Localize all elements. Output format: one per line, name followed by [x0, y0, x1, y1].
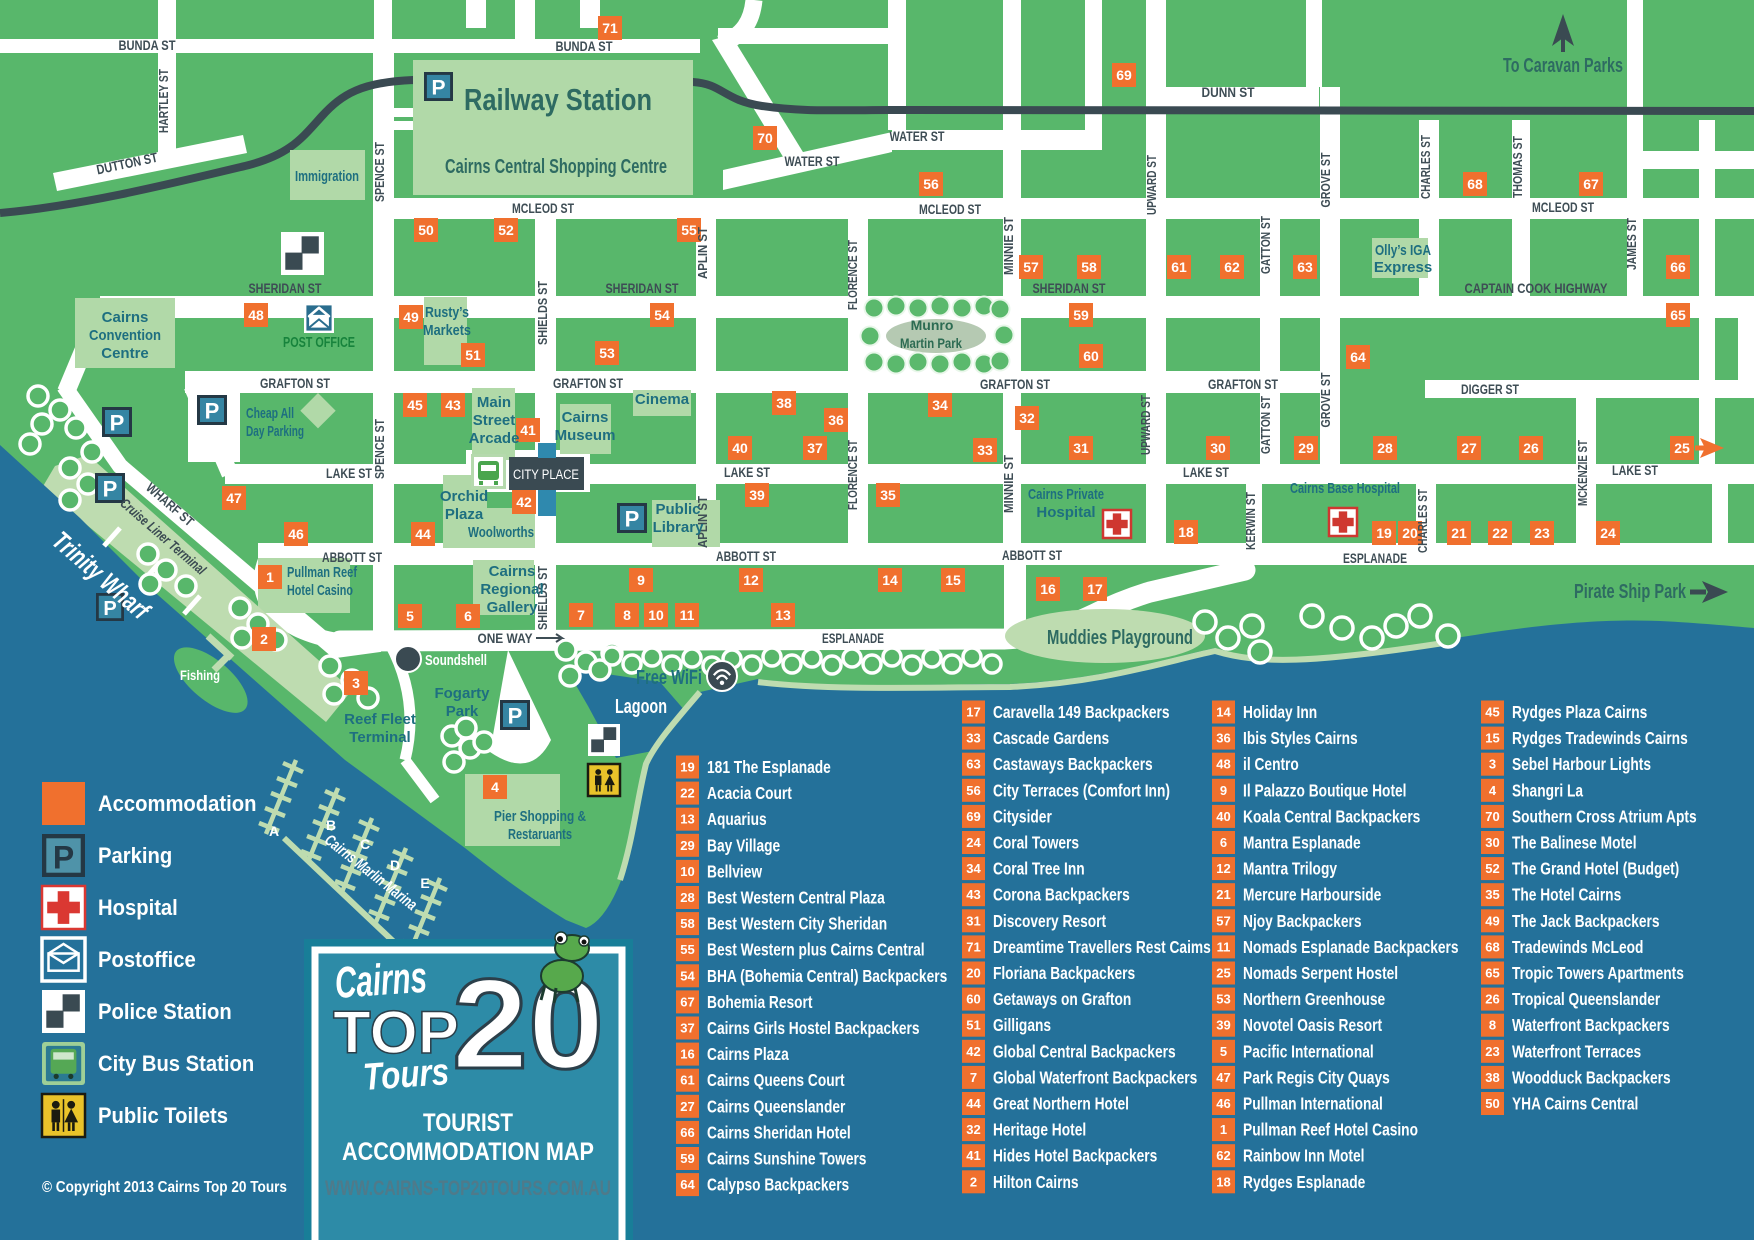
svg-text:Centre: Centre — [101, 345, 149, 362]
svg-text:Tradewinds McLeod: Tradewinds McLeod — [1512, 939, 1643, 958]
svg-text:10: 10 — [648, 607, 664, 623]
svg-text:The Balinese Motel: The Balinese Motel — [1512, 834, 1637, 853]
svg-text:HARTLEY ST: HARTLEY ST — [156, 69, 171, 133]
svg-text:53: 53 — [1216, 992, 1230, 1007]
svg-text:Pacific International: Pacific International — [1243, 1043, 1374, 1062]
svg-text:Cairns Girls Hostel Backpacker: Cairns Girls Hostel Backpackers — [707, 1020, 920, 1039]
svg-text:Aquarius: Aquarius — [707, 811, 767, 830]
svg-text:Best Western plus Cairns Centr: Best Western plus Cairns Central — [707, 941, 925, 960]
svg-text:58: 58 — [680, 916, 694, 931]
svg-text:40: 40 — [732, 440, 748, 456]
svg-text:Hospital: Hospital — [98, 896, 178, 920]
svg-text:CHARLES ST: CHARLES ST — [1415, 489, 1430, 553]
svg-text:P: P — [103, 476, 118, 501]
svg-text:24: 24 — [966, 835, 981, 850]
svg-text:26: 26 — [1485, 992, 1499, 1007]
svg-text:30: 30 — [1485, 835, 1499, 850]
svg-text:ABBOTT ST: ABBOTT ST — [322, 550, 383, 565]
svg-text:5: 5 — [406, 608, 414, 624]
svg-text:© Copyright 2013 Cairns Top 20: © Copyright 2013 Cairns Top 20 Tours — [42, 1179, 287, 1196]
svg-text:Restaruants: Restaruants — [508, 826, 572, 843]
svg-text:POST OFFICE: POST OFFICE — [283, 335, 355, 351]
svg-text:Fishing: Fishing — [180, 667, 220, 683]
svg-text:Waterfront Backpackers: Waterfront Backpackers — [1512, 1017, 1670, 1036]
svg-text:MINNIE ST: MINNIE ST — [1001, 455, 1016, 513]
svg-text:Postoffice: Postoffice — [98, 948, 196, 972]
svg-text:27: 27 — [680, 1099, 694, 1114]
svg-text:Hotel Casino: Hotel Casino — [287, 582, 353, 599]
svg-text:25: 25 — [1216, 966, 1230, 981]
svg-text:MCKENZIE ST: MCKENZIE ST — [1575, 440, 1590, 506]
svg-text:30: 30 — [1210, 440, 1226, 456]
svg-text:14: 14 — [882, 572, 898, 588]
svg-text:Immigration: Immigration — [295, 168, 359, 185]
svg-text:FLORENCE ST: FLORENCE ST — [845, 440, 860, 510]
svg-text:SHERIDAN ST: SHERIDAN ST — [249, 281, 323, 296]
svg-text:6: 6 — [1220, 835, 1227, 850]
svg-text:26: 26 — [1523, 440, 1539, 456]
svg-text:MCLEOD ST: MCLEOD ST — [512, 201, 575, 216]
svg-text:P: P — [53, 839, 74, 875]
svg-text:E: E — [420, 875, 429, 891]
svg-text:41: 41 — [520, 422, 536, 438]
svg-text:4: 4 — [491, 779, 499, 795]
svg-text:56: 56 — [923, 176, 939, 192]
svg-text:45: 45 — [407, 397, 423, 413]
svg-text:Njoy Backpackers: Njoy Backpackers — [1243, 912, 1362, 931]
svg-text:Hospital: Hospital — [1036, 504, 1095, 521]
svg-text:54: 54 — [680, 968, 695, 983]
svg-text:32: 32 — [1019, 410, 1035, 426]
svg-text:47: 47 — [226, 490, 242, 506]
svg-text:60: 60 — [966, 992, 980, 1007]
svg-text:Gilligans: Gilligans — [993, 1017, 1051, 1036]
svg-text:APLIN ST: APLIN ST — [695, 227, 710, 279]
svg-text:Koala Central Backpackers: Koala Central Backpackers — [1243, 808, 1421, 827]
svg-text:YHA Cairns Central: YHA Cairns Central — [1512, 1095, 1638, 1114]
svg-text:BUNDA ST: BUNDA ST — [556, 39, 614, 54]
svg-text:ACCOMMODATION MAP: ACCOMMODATION MAP — [342, 1138, 594, 1166]
svg-text:48: 48 — [248, 307, 264, 323]
svg-text:35: 35 — [880, 487, 896, 503]
svg-text:4: 4 — [1489, 783, 1497, 798]
svg-text:43: 43 — [445, 397, 461, 413]
svg-text:Caravella 149 Backpackers: Caravella 149 Backpackers — [993, 704, 1170, 723]
svg-text:Pullman International: Pullman International — [1243, 1095, 1383, 1114]
svg-text:15: 15 — [945, 572, 961, 588]
svg-text:Southern Cross Atrium Apts: Southern Cross Atrium Apts — [1512, 808, 1697, 827]
svg-text:Nomads Esplanade Backpackers: Nomads Esplanade Backpackers — [1243, 939, 1459, 958]
svg-text:ESPLANADE: ESPLANADE — [1343, 551, 1407, 566]
svg-text:20: 20 — [966, 966, 980, 981]
svg-text:Waterfront Terraces: Waterfront Terraces — [1512, 1043, 1641, 1062]
svg-text:21: 21 — [1216, 887, 1230, 902]
svg-text:65: 65 — [1670, 307, 1686, 323]
svg-text:P: P — [205, 398, 220, 423]
svg-text:GRAFTON ST: GRAFTON ST — [553, 376, 624, 391]
svg-text:54: 54 — [654, 307, 670, 323]
svg-text:SHERIDAN ST: SHERIDAN ST — [606, 281, 680, 296]
svg-text:17: 17 — [966, 705, 980, 720]
svg-text:WATER ST: WATER ST — [785, 154, 841, 169]
svg-text:Pirate Ship Park: Pirate Ship Park — [1574, 581, 1687, 603]
svg-text:46: 46 — [1216, 1096, 1230, 1111]
svg-text:Pier Shopping &: Pier Shopping & — [494, 808, 586, 825]
svg-text:67: 67 — [1583, 176, 1599, 192]
svg-text:48: 48 — [1216, 757, 1230, 772]
svg-text:Cascade Gardens: Cascade Gardens — [993, 730, 1109, 749]
svg-text:Coral Towers: Coral Towers — [993, 834, 1079, 853]
svg-text:Cairns: Cairns — [489, 563, 536, 580]
svg-text:Tours: Tours — [362, 1051, 451, 1099]
svg-text:1: 1 — [1220, 1122, 1227, 1137]
svg-text:41: 41 — [966, 1148, 980, 1163]
svg-text:Park Regis City Quays: Park Regis City Quays — [1243, 1069, 1390, 1088]
svg-text:Parking: Parking — [98, 844, 172, 868]
svg-text:DUNN ST: DUNN ST — [1202, 85, 1256, 100]
svg-text:ONE WAY: ONE WAY — [478, 631, 533, 646]
svg-text:31: 31 — [966, 913, 980, 928]
svg-text:C: C — [360, 836, 370, 852]
svg-text:68: 68 — [1467, 176, 1483, 192]
svg-text:Global Central Backpackers: Global Central Backpackers — [993, 1043, 1176, 1062]
svg-text:UPWARD ST: UPWARD ST — [1144, 155, 1159, 215]
svg-text:Fogarty: Fogarty — [434, 685, 490, 702]
svg-text:70: 70 — [1485, 809, 1499, 824]
svg-text:34: 34 — [966, 861, 981, 876]
svg-text:28: 28 — [680, 890, 694, 905]
svg-text:69: 69 — [1116, 67, 1132, 83]
svg-text:66: 66 — [680, 1125, 694, 1140]
svg-text:57: 57 — [1023, 259, 1039, 275]
svg-text:Heritage Hotel: Heritage Hotel — [993, 1121, 1086, 1140]
svg-text:Museum: Museum — [555, 427, 616, 444]
svg-text:62: 62 — [1216, 1148, 1230, 1163]
svg-text:47: 47 — [1216, 1070, 1230, 1085]
svg-text:LAKE ST: LAKE ST — [1612, 463, 1659, 478]
svg-text:SPENCE ST: SPENCE ST — [372, 419, 387, 479]
svg-text:52: 52 — [1485, 861, 1499, 876]
svg-text:10: 10 — [680, 864, 694, 879]
svg-text:Global Waterfront Backpackers: Global Waterfront Backpackers — [993, 1069, 1198, 1088]
svg-text:38: 38 — [776, 395, 792, 411]
svg-text:Discovery Resort: Discovery Resort — [993, 912, 1106, 931]
svg-text:ESPLANADE: ESPLANADE — [822, 631, 884, 646]
svg-text:Nomads Serpent Hostel: Nomads Serpent Hostel — [1243, 965, 1398, 984]
svg-text:59: 59 — [680, 1151, 694, 1166]
svg-text:Hides Hotel Backpackers: Hides Hotel Backpackers — [993, 1147, 1158, 1166]
svg-text:Rydges Esplanade: Rydges Esplanade — [1243, 1173, 1366, 1192]
svg-text:Muddies Playground: Muddies Playground — [1047, 627, 1193, 649]
svg-text:32: 32 — [966, 1122, 980, 1137]
svg-text:37: 37 — [680, 1021, 694, 1036]
svg-text:181 The Esplanade: 181 The Esplanade — [707, 759, 831, 778]
svg-text:Corona Backpackers: Corona Backpackers — [993, 886, 1130, 905]
svg-text:Reef Fleet: Reef Fleet — [344, 711, 416, 728]
svg-text:Cairns Private: Cairns Private — [1028, 486, 1104, 503]
svg-text:7: 7 — [970, 1070, 977, 1085]
svg-text:Accommodation: Accommodation — [98, 792, 256, 816]
svg-text:Cairns Base Hospital: Cairns Base Hospital — [1290, 480, 1400, 497]
svg-text:SHIELDS ST: SHIELDS ST — [535, 281, 550, 345]
svg-text:Woodduck Backpackers: Woodduck Backpackers — [1512, 1069, 1671, 1088]
svg-text:LAKE ST: LAKE ST — [326, 466, 373, 481]
svg-text:Cairns Queenslander: Cairns Queenslander — [707, 1098, 845, 1117]
svg-text:42: 42 — [966, 1044, 980, 1059]
svg-text:The Grand Hotel (Budget): The Grand Hotel (Budget) — [1512, 860, 1679, 879]
svg-text:69: 69 — [966, 809, 980, 824]
svg-text:P: P — [431, 77, 445, 100]
svg-text:14: 14 — [1216, 705, 1231, 720]
svg-text:51: 51 — [966, 1018, 980, 1033]
svg-text:22: 22 — [680, 786, 694, 801]
svg-text:64: 64 — [680, 1177, 695, 1192]
svg-text:Holiday Inn: Holiday Inn — [1243, 704, 1317, 723]
svg-text:Rainbow Inn Motel: Rainbow Inn Motel — [1243, 1147, 1364, 1166]
svg-text:Markets: Markets — [423, 322, 471, 339]
svg-text:43: 43 — [966, 887, 980, 902]
svg-text:Best Western Central Plaza: Best Western Central Plaza — [707, 889, 885, 908]
svg-text:Munro: Munro — [911, 317, 954, 333]
svg-text:51: 51 — [465, 347, 481, 363]
svg-text:Plaza: Plaza — [445, 506, 484, 523]
svg-text:Park: Park — [446, 703, 479, 720]
svg-text:59: 59 — [1073, 307, 1089, 323]
svg-text:Castaways Backpackers: Castaways Backpackers — [993, 756, 1153, 775]
svg-text:Sebel Harbour Lights: Sebel Harbour Lights — [1512, 756, 1651, 775]
svg-text:City Terraces (Comfort Inn): City Terraces (Comfort Inn) — [993, 782, 1170, 801]
svg-text:Rydges Tradewinds Cairns: Rydges Tradewinds Cairns — [1512, 730, 1688, 749]
svg-text:Cairns: Cairns — [102, 309, 149, 326]
svg-text:67: 67 — [680, 994, 694, 1009]
svg-text:Northern Greenhouse: Northern Greenhouse — [1243, 991, 1385, 1010]
svg-text:The Jack Backpackers: The Jack Backpackers — [1512, 912, 1660, 931]
svg-text:8: 8 — [623, 607, 631, 623]
svg-text:Express: Express — [1374, 259, 1432, 276]
svg-text:52: 52 — [498, 222, 514, 238]
svg-text:To Caravan Parks: To Caravan Parks — [1503, 55, 1623, 77]
svg-text:63: 63 — [1297, 259, 1313, 275]
svg-text:8: 8 — [1489, 1018, 1496, 1033]
svg-text:Gallery: Gallery — [487, 599, 539, 616]
svg-text:Best Western City Sheridan: Best Western City Sheridan — [707, 915, 887, 934]
svg-text:Mercure Harbourside: Mercure Harbourside — [1243, 886, 1382, 905]
svg-text:53: 53 — [599, 345, 615, 361]
svg-text:Cairns: Cairns — [562, 409, 609, 426]
svg-text:16: 16 — [680, 1047, 694, 1062]
svg-text:Library: Library — [653, 519, 705, 536]
svg-text:70: 70 — [757, 130, 773, 146]
svg-text:Bellview: Bellview — [707, 863, 763, 882]
svg-text:SPENCE ST: SPENCE ST — [372, 142, 387, 202]
svg-text:LAKE ST: LAKE ST — [724, 465, 771, 480]
svg-text:Dreamtime Travellers Rest Caim: Dreamtime Travellers Rest Caims — [993, 939, 1211, 958]
svg-text:MCLEOD ST: MCLEOD ST — [919, 202, 982, 217]
svg-text:P: P — [508, 703, 523, 728]
svg-text:SHERIDAN ST: SHERIDAN ST — [1033, 281, 1107, 296]
svg-text:38: 38 — [1485, 1070, 1499, 1085]
svg-text:Getaways on Grafton: Getaways on Grafton — [993, 991, 1131, 1010]
svg-text:GRAFTON ST: GRAFTON ST — [980, 377, 1051, 392]
svg-text:Pullman Reef Hotel Casino: Pullman Reef Hotel Casino — [1243, 1121, 1418, 1140]
svg-text:31: 31 — [1073, 440, 1089, 456]
svg-text:Soundshell: Soundshell — [425, 652, 487, 669]
svg-text:BUNDA ST: BUNDA ST — [119, 38, 177, 53]
svg-text:40: 40 — [1216, 809, 1230, 824]
svg-text:Public Toilets: Public Toilets — [98, 1104, 228, 1128]
svg-text:9: 9 — [1220, 783, 1227, 798]
svg-text:9: 9 — [637, 572, 645, 588]
svg-text:P: P — [110, 410, 125, 435]
svg-text:61: 61 — [680, 1073, 694, 1088]
svg-text:3: 3 — [1489, 757, 1496, 772]
svg-text:61: 61 — [1171, 259, 1187, 275]
svg-text:33: 33 — [977, 442, 993, 458]
svg-text:Ibis Styles Cairns: Ibis Styles Cairns — [1243, 730, 1358, 749]
svg-text:44: 44 — [415, 526, 431, 542]
svg-text:Mantra Esplanade: Mantra Esplanade — [1243, 834, 1361, 853]
svg-text:46: 46 — [288, 526, 304, 542]
svg-text:Acacia Court: Acacia Court — [707, 785, 792, 804]
svg-text:Police Station: Police Station — [98, 1000, 232, 1024]
svg-text:56: 56 — [966, 783, 980, 798]
svg-text:33: 33 — [966, 731, 980, 746]
svg-text:Lagoon: Lagoon — [615, 696, 667, 718]
svg-text:Novotel Oasis Resort: Novotel Oasis Resort — [1243, 1017, 1382, 1036]
svg-text:A: A — [269, 823, 279, 839]
svg-text:UPWARD ST: UPWARD ST — [1138, 395, 1153, 455]
svg-text:Arcade: Arcade — [469, 430, 520, 447]
svg-text:23: 23 — [1534, 525, 1550, 541]
svg-text:3: 3 — [352, 675, 360, 691]
svg-text:GRAFTON ST: GRAFTON ST — [260, 376, 331, 391]
svg-text:Cairns Sheridan Hotel: Cairns Sheridan Hotel — [707, 1124, 851, 1143]
svg-text:27: 27 — [1461, 440, 1477, 456]
svg-text:il Centro: il Centro — [1243, 756, 1299, 775]
svg-text:19: 19 — [680, 760, 694, 775]
svg-text:Day Parking: Day Parking — [246, 423, 304, 440]
svg-text:Street: Street — [473, 412, 516, 429]
svg-text:FLORENCE ST: FLORENCE ST — [845, 240, 860, 310]
svg-text:55: 55 — [680, 942, 694, 957]
svg-text:Shangri La: Shangri La — [1512, 782, 1583, 801]
svg-text:65: 65 — [1485, 966, 1499, 981]
svg-text:11: 11 — [1217, 939, 1231, 954]
svg-text:2: 2 — [970, 1174, 977, 1189]
svg-text:35: 35 — [1485, 887, 1499, 902]
svg-text:GRAFTON ST: GRAFTON ST — [1208, 377, 1279, 392]
svg-text:71: 71 — [602, 20, 618, 36]
svg-text:71: 71 — [966, 939, 980, 954]
svg-text:Great Northern Hotel: Great Northern Hotel — [993, 1095, 1129, 1114]
svg-text:Floriana Backpackers: Floriana Backpackers — [993, 965, 1135, 984]
svg-text:Cairns Sunshine Towers: Cairns Sunshine Towers — [707, 1150, 867, 1169]
svg-text:29: 29 — [680, 838, 694, 853]
svg-text:50: 50 — [418, 222, 434, 238]
svg-text:49: 49 — [403, 309, 419, 325]
svg-text:BHA (Bohemia Central) Backpack: BHA (Bohemia Central) Backpackers — [707, 967, 947, 986]
svg-text:Cairns Plaza: Cairns Plaza — [707, 1046, 789, 1065]
svg-text:Free WiFi: Free WiFi — [636, 667, 702, 689]
svg-text:Cinema: Cinema — [635, 391, 690, 408]
svg-text:Terminal: Terminal — [349, 729, 410, 746]
svg-text:12: 12 — [1216, 861, 1230, 876]
svg-text:Rusty’s: Rusty’s — [425, 304, 469, 321]
svg-text:Woolworths: Woolworths — [468, 524, 534, 541]
svg-text:CAPTAIN COOK HIGHWAY: CAPTAIN COOK HIGHWAY — [1465, 281, 1608, 296]
svg-text:Hilton Cairns: Hilton Cairns — [993, 1173, 1079, 1192]
svg-text:Cairns Queens Court: Cairns Queens Court — [707, 1072, 845, 1091]
svg-text:GROVE ST: GROVE ST — [1318, 152, 1333, 207]
svg-text:THOMAS ST: THOMAS ST — [1510, 136, 1525, 198]
svg-text:Mantra Trilogy: Mantra Trilogy — [1243, 860, 1337, 879]
svg-text:6: 6 — [464, 608, 472, 624]
svg-text:Martin Park: Martin Park — [900, 335, 962, 351]
svg-text:Coral Tree Inn: Coral Tree Inn — [993, 860, 1085, 879]
svg-text:Cheap All: Cheap All — [246, 405, 294, 422]
svg-text:Il Palazzo Boutique Hotel: Il Palazzo Boutique Hotel — [1243, 782, 1406, 801]
svg-text:Main: Main — [477, 394, 511, 411]
svg-text:MINNIE ST: MINNIE ST — [1001, 217, 1016, 275]
svg-text:66: 66 — [1670, 259, 1686, 275]
svg-text:18: 18 — [1216, 1174, 1230, 1189]
svg-text:The Hotel Cairns: The Hotel Cairns — [1512, 886, 1622, 905]
svg-text:23: 23 — [1485, 1044, 1499, 1059]
svg-text:WATER ST: WATER ST — [890, 129, 946, 144]
svg-text:B: B — [326, 817, 336, 833]
svg-text:Regional: Regional — [480, 581, 543, 598]
svg-text:58: 58 — [1081, 259, 1097, 275]
svg-text:City Bus Station: City Bus Station — [98, 1052, 254, 1076]
svg-text:42: 42 — [516, 494, 532, 510]
svg-text:Calypso Backpackers: Calypso Backpackers — [707, 1176, 849, 1195]
svg-text:37: 37 — [807, 440, 823, 456]
svg-text:24: 24 — [1600, 525, 1616, 541]
svg-text:64: 64 — [1350, 349, 1366, 365]
svg-text:DIGGER ST: DIGGER ST — [1461, 382, 1520, 397]
svg-text:Public: Public — [655, 501, 700, 518]
svg-text:28: 28 — [1377, 440, 1393, 456]
svg-text:LAKE ST: LAKE ST — [1183, 465, 1230, 480]
svg-text:GATTON ST: GATTON ST — [1258, 216, 1273, 274]
svg-text:Rydges Plaza Cairns: Rydges Plaza Cairns — [1512, 704, 1648, 723]
svg-text:CHARLES ST: CHARLES ST — [1418, 135, 1433, 199]
svg-text:18: 18 — [1178, 524, 1194, 540]
svg-text:15: 15 — [1485, 731, 1499, 746]
svg-text:13: 13 — [680, 812, 694, 827]
svg-text:Bohemia Resort: Bohemia Resort — [707, 994, 812, 1013]
svg-text:62: 62 — [1224, 259, 1240, 275]
svg-text:TOURIST: TOURIST — [423, 1109, 513, 1137]
svg-text:17: 17 — [1087, 581, 1103, 597]
svg-text:57: 57 — [1216, 913, 1230, 928]
svg-text:16: 16 — [1040, 581, 1056, 597]
svg-text:P: P — [625, 506, 640, 531]
svg-text:Citysider: Citysider — [993, 808, 1052, 827]
svg-text:JAMES ST: JAMES ST — [1624, 218, 1639, 270]
svg-text:Tropical Queenslander: Tropical Queenslander — [1512, 991, 1660, 1010]
svg-text:25: 25 — [1674, 440, 1690, 456]
svg-text:49: 49 — [1485, 913, 1499, 928]
svg-text:50: 50 — [1485, 1096, 1499, 1111]
svg-text:45: 45 — [1485, 705, 1499, 720]
svg-text:2: 2 — [260, 631, 268, 647]
svg-text:KERWIN ST: KERWIN ST — [1243, 492, 1258, 550]
svg-text:Railway Station: Railway Station — [464, 82, 652, 117]
svg-text:36: 36 — [1216, 731, 1230, 746]
svg-text:ABBOTT ST: ABBOTT ST — [1002, 548, 1063, 563]
svg-text:GATTON ST: GATTON ST — [1258, 396, 1273, 454]
